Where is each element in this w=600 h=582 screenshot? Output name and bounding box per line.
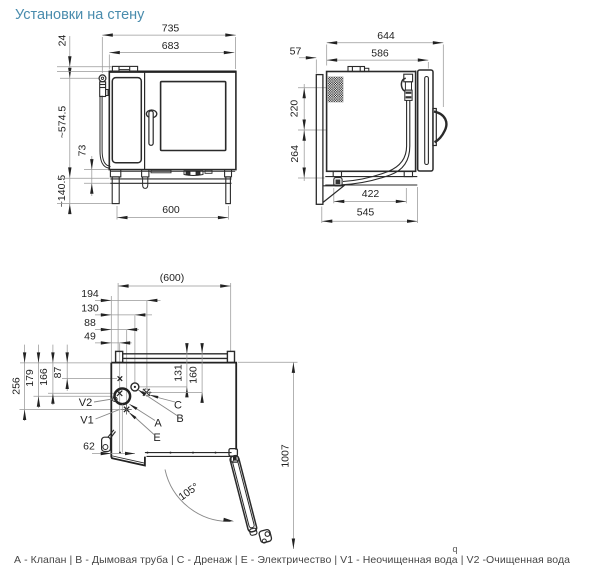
svg-text:586: 586 — [371, 47, 389, 59]
svg-text:179: 179 — [24, 369, 36, 387]
svg-text:V2: V2 — [79, 397, 92, 409]
svg-text:q: q — [453, 544, 458, 554]
svg-text:220: 220 — [289, 100, 301, 118]
svg-text:73: 73 — [77, 145, 89, 157]
svg-text:131: 131 — [173, 364, 185, 382]
svg-text:160: 160 — [188, 366, 200, 384]
svg-text:545: 545 — [357, 206, 375, 218]
svg-text:А - Клапан | В - Дымовая труба: А - Клапан | В - Дымовая труба | С - Дре… — [14, 554, 570, 566]
svg-text:~574.5: ~574.5 — [57, 106, 69, 139]
svg-text:1007: 1007 — [280, 444, 292, 468]
svg-text:87: 87 — [52, 367, 64, 379]
svg-text:600: 600 — [162, 204, 180, 216]
svg-text:264: 264 — [289, 145, 301, 163]
svg-text:E: E — [153, 432, 160, 444]
svg-text:194: 194 — [81, 288, 99, 300]
svg-text:(600): (600) — [160, 272, 185, 284]
svg-text:683: 683 — [162, 40, 180, 52]
svg-text:C: C — [174, 400, 182, 412]
svg-text:49: 49 — [84, 330, 96, 342]
svg-text:166: 166 — [38, 368, 50, 386]
svg-text:422: 422 — [362, 188, 380, 200]
svg-text:B: B — [176, 413, 183, 425]
svg-text:57: 57 — [290, 45, 302, 57]
svg-text:644: 644 — [377, 30, 395, 42]
svg-text:~140.5: ~140.5 — [56, 175, 68, 208]
svg-text:256: 256 — [11, 377, 23, 395]
svg-text:V1: V1 — [80, 415, 93, 427]
svg-text:Установки на стену: Установки на стену — [15, 7, 145, 23]
svg-text:24: 24 — [57, 35, 69, 47]
svg-text:735: 735 — [162, 23, 180, 35]
svg-text:130: 130 — [81, 302, 99, 314]
svg-text:88: 88 — [84, 317, 96, 329]
svg-text:62: 62 — [83, 441, 95, 453]
svg-text:A: A — [154, 418, 162, 430]
